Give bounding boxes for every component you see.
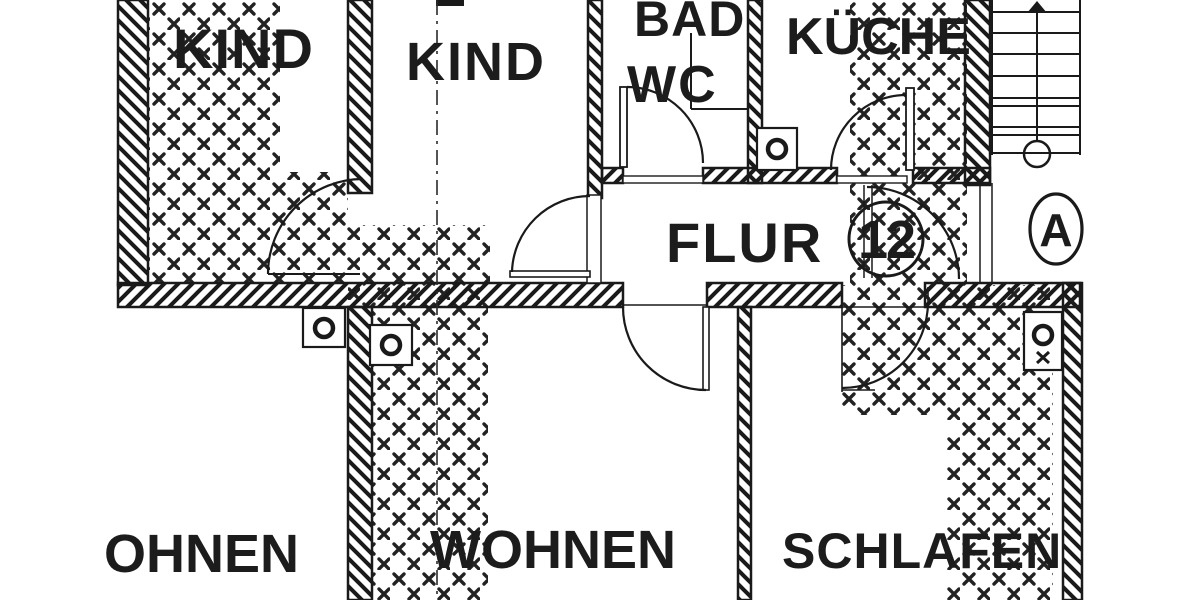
socket-symbol-wohnen — [370, 325, 412, 365]
room-label-schlafen: SCHLAFEN — [782, 523, 1062, 579]
wall-mid-left — [118, 283, 623, 307]
socket-symbol-schlafen — [1024, 312, 1062, 370]
flur-kind-door-frame — [587, 195, 601, 283]
room-label-wohnen: WOHNEN — [430, 520, 676, 580]
wall-mid-right — [925, 283, 1080, 307]
room-label-kind-left: KIND — [173, 17, 314, 80]
room-label-wohnen-left: OHNEN — [104, 524, 299, 584]
room-label-kind-mid: KIND — [406, 32, 546, 92]
stairwell-letter-label: A — [1039, 204, 1072, 256]
flur-kind-door-leaf — [510, 271, 590, 277]
floor-plan-drawing: 12 A KIND KIND BAD WC KÜCHE FLUR OHNEN W… — [0, 0, 1200, 600]
room-label-kueche: KÜCHE — [786, 8, 971, 66]
room-label-bad: BAD — [634, 0, 745, 47]
wall-schlafen-right — [1063, 283, 1082, 600]
bad-door-threshold — [623, 176, 703, 183]
wall-wohnen-left — [348, 307, 372, 600]
apartment-number-label: 12 — [858, 210, 914, 270]
room-label-wc: WC — [627, 56, 718, 114]
wall-flur-top-a — [602, 168, 623, 183]
wall-kind-left-outer — [118, 0, 148, 285]
wohnen-door-leaf — [703, 307, 709, 390]
wall-stub-top — [436, 0, 464, 6]
wall-mid-center — [707, 283, 842, 307]
wall-bad-left — [588, 0, 602, 198]
wall-flur-top-c — [913, 168, 990, 183]
floor-plan-page: 12 A KIND KIND BAD WC KÜCHE FLUR OHNEN W… — [0, 0, 1200, 600]
wall-kind-kind — [348, 0, 372, 193]
kueche-door-threshold — [837, 176, 907, 183]
socket-symbol-kueche — [757, 128, 797, 170]
bad-door-leaf — [620, 87, 627, 167]
wall-wohnen-schlafen — [738, 307, 751, 600]
socket-symbol-ohnen — [303, 308, 345, 347]
kueche-door-leaf — [906, 88, 914, 170]
room-label-flur: FLUR — [666, 211, 823, 274]
crosshatch-kind-left-lower — [148, 172, 348, 284]
